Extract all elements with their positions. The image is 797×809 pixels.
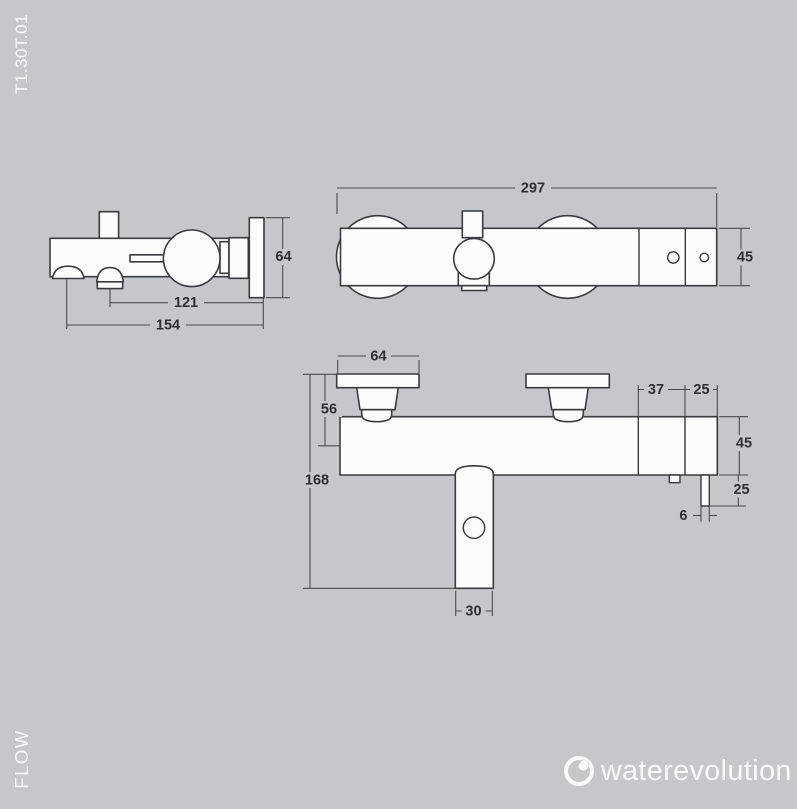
side-dim-154-label: 154 xyxy=(156,318,180,334)
top-dim-6-label: 6 xyxy=(679,508,687,524)
side-dim-64-label: 64 xyxy=(275,249,291,265)
front-dim-297-label: 297 xyxy=(521,181,545,197)
brand-name: waterevolution xyxy=(601,751,792,791)
side-wall-plate xyxy=(249,218,264,298)
top-dim-25-label: 25 xyxy=(693,382,709,398)
top-dim-30-label: 30 xyxy=(465,603,481,619)
side-neck xyxy=(220,242,229,274)
front-handle-ball xyxy=(454,238,495,279)
top-view: 64 56 168 37 25 xyxy=(299,349,757,620)
top-collar-2 xyxy=(553,410,583,422)
model-code: T1.30T.01 xyxy=(12,4,32,104)
side-dim-121: 121 xyxy=(110,289,263,329)
top-collar-1 xyxy=(362,410,392,422)
side-housing xyxy=(229,238,248,279)
front-dim-45-label: 45 xyxy=(737,250,753,266)
top-dim-56-label: 56 xyxy=(321,402,337,418)
top-dim-37-25: 37 25 xyxy=(638,382,717,417)
top-dim-6: 6 xyxy=(679,506,717,524)
top-neck-2 xyxy=(548,388,588,410)
top-dim-45: 45 xyxy=(719,417,757,475)
top-flange-plate-2 xyxy=(526,374,609,388)
waterevolution-icon xyxy=(560,751,598,791)
front-diverter-knob xyxy=(462,211,482,238)
top-rod xyxy=(701,475,709,506)
top-neck-1 xyxy=(357,388,399,410)
brand-logo: waterevolution xyxy=(560,751,792,791)
side-handle-ball xyxy=(163,230,220,287)
front-screw-hole-2 xyxy=(700,253,709,262)
top-dim-25-rod: 25 xyxy=(710,475,754,506)
front-screw-hole-1 xyxy=(668,252,679,263)
side-diverter-knob xyxy=(99,212,118,239)
top-dim-168-label: 168 xyxy=(305,473,329,489)
front-dim-45: 45 xyxy=(719,228,758,285)
side-dim-154: 154 xyxy=(67,280,264,334)
top-dim-25-rod-label: 25 xyxy=(733,482,749,498)
front-body xyxy=(341,228,717,285)
top-dim-37-label: 37 xyxy=(648,382,664,398)
technical-drawing: 64 121 154 xyxy=(0,0,797,800)
side-dim-64: 64 xyxy=(266,218,296,298)
top-dim-45-label: 45 xyxy=(736,435,752,451)
top-body xyxy=(340,417,717,475)
top-flange-plate-1 xyxy=(337,374,419,388)
top-dim-64-label: 64 xyxy=(370,349,386,365)
top-dim-30: 30 xyxy=(456,591,493,620)
drawing-sheet: 64 121 154 xyxy=(0,0,797,800)
front-view: 297 45 xyxy=(337,181,759,299)
top-dim-64: 64 xyxy=(338,349,419,374)
front-spout-stub xyxy=(462,286,487,291)
top-spout-hole xyxy=(463,517,484,538)
side-view: 64 121 154 xyxy=(50,212,296,334)
top-tab xyxy=(669,475,680,483)
side-dim-121-label: 121 xyxy=(174,295,198,311)
series-label: FLOW xyxy=(11,709,33,809)
